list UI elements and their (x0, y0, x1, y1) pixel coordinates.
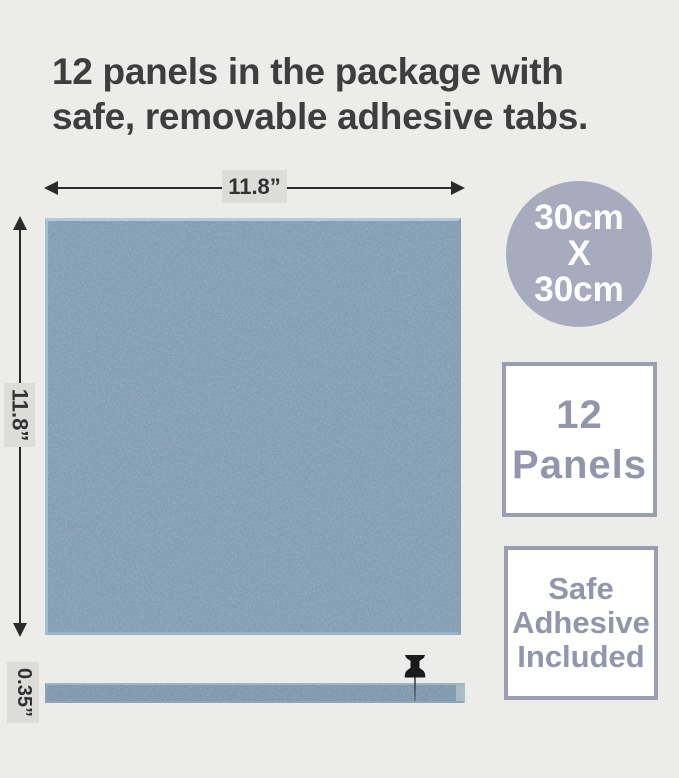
adhesive-badge: Safe Adhesive Included (504, 546, 658, 700)
page-title: 12 panels in the package with safe, remo… (52, 49, 627, 139)
adhesive-line-1: Safe (548, 572, 613, 606)
title-line-2: safe, removable adhesive tabs. (52, 94, 627, 139)
width-dimension-label: 11.8” (222, 170, 287, 203)
acoustic-panel-front-view (45, 218, 461, 635)
felt-texture (48, 221, 458, 632)
strip-beveled-edge (456, 685, 463, 701)
product-infographic: 12 panels in the package with safe, remo… (0, 0, 679, 778)
size-line-1: 30cm (534, 200, 624, 236)
push-pin-icon (404, 655, 426, 702)
acoustic-panel-side-view (45, 683, 465, 703)
thickness-dimension-label: 0.35” (7, 662, 39, 723)
thickness-value: 0.35” (12, 668, 35, 717)
arrowhead-up-icon (13, 216, 27, 230)
width-value: 11.8” (228, 174, 281, 200)
height-value: 11.8” (7, 389, 33, 442)
felt-texture (47, 685, 463, 701)
title-line-1: 12 panels in the package with (52, 49, 627, 94)
adhesive-line-2: Adhesive (512, 606, 650, 640)
panel-count-number: 12 (556, 390, 603, 440)
arrowhead-right-icon (451, 181, 465, 195)
arrowhead-down-icon (13, 623, 27, 637)
panel-count-word: Panels (512, 440, 647, 490)
size-line-3: 30cm (534, 272, 624, 308)
size-badge-circle: 30cm X 30cm (506, 181, 652, 327)
arrowhead-left-icon (44, 181, 58, 195)
height-dimension-label: 11.8” (4, 383, 35, 447)
panel-count-badge: 12 Panels (502, 362, 657, 517)
size-line-2: X (567, 236, 590, 272)
adhesive-line-3: Included (517, 640, 644, 674)
